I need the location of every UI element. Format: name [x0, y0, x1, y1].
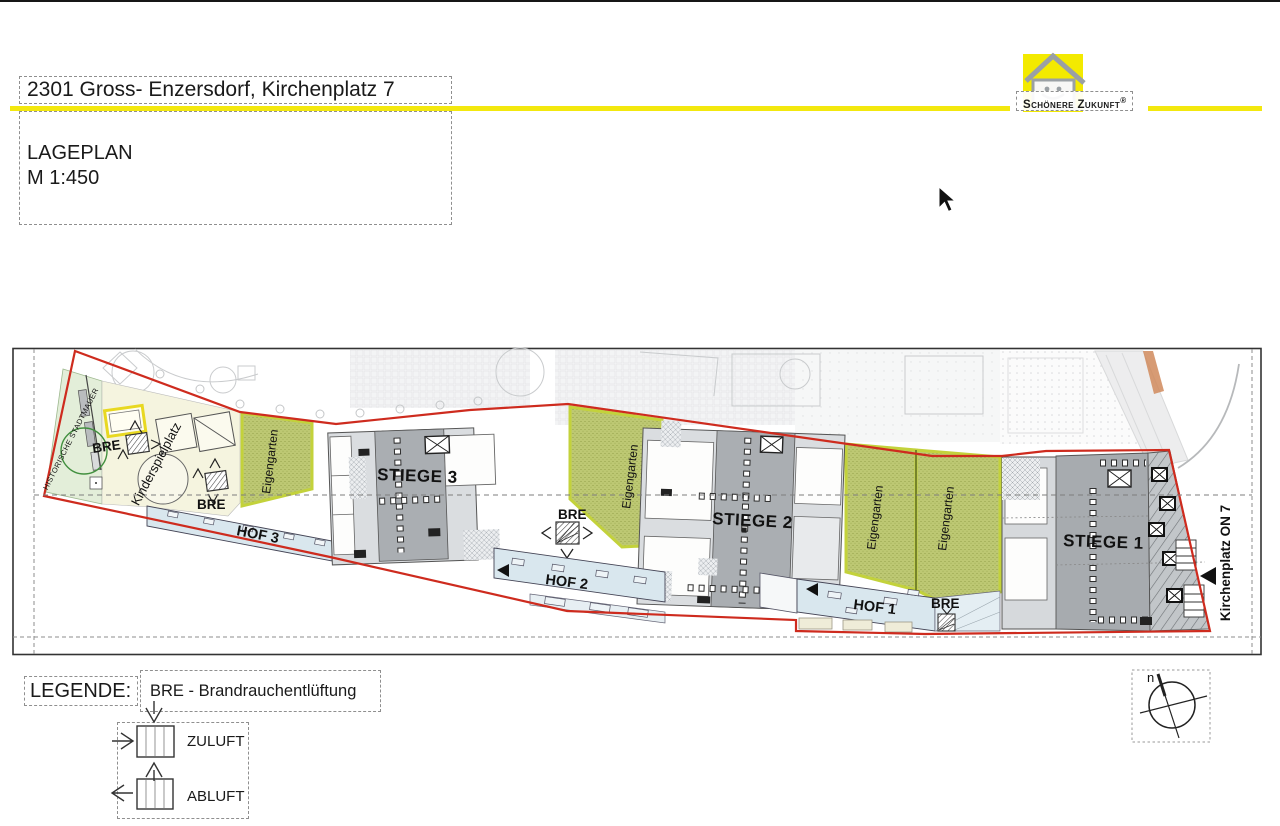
- stiege3-label: STIEGE 3: [377, 465, 458, 487]
- bre-vent-1: [126, 433, 149, 455]
- street-label: Kirchenplatz ON 7: [1218, 505, 1233, 621]
- stiege1-label: STIEGE 1: [1063, 531, 1144, 553]
- north-label: n: [1147, 670, 1154, 685]
- bre-label-4: BRE: [931, 596, 960, 611]
- zuluft-down-arrow-icon: [146, 701, 162, 722]
- zuluft-label: ZULUFT: [187, 733, 245, 750]
- north-compass: n: [1128, 664, 1216, 746]
- project-title: 2301 Gross- Enzersdorf, Kirchenplatz 7: [19, 76, 452, 104]
- page-top-edge: [0, 0, 1280, 2]
- logo-wordmark: Schönere Zukunft®: [1016, 91, 1133, 111]
- accent-underline-right: [1148, 106, 1262, 111]
- plan-sheet: 2301 Gross- Enzersdorf, Kirchenplatz 7 L…: [0, 0, 1280, 826]
- registered-mark: ®: [1120, 96, 1126, 105]
- logo-brand-text: Schönere Zukunft: [1023, 99, 1120, 111]
- building-stiege3: [328, 427, 501, 565]
- zuluft-in-arrow-icon: [112, 733, 133, 749]
- plan-scale: M 1:450: [27, 166, 451, 191]
- plan-type-label: LAGEPLAN: [27, 141, 451, 166]
- abluft-out-arrow-icon: [112, 785, 133, 801]
- abluft-label: ABLUFT: [187, 788, 245, 805]
- mouse-cursor-icon: [936, 186, 958, 214]
- bre-label-3: BRE: [558, 507, 587, 522]
- bre-label-2: BRE: [197, 497, 226, 512]
- abluft-up-arrow-icon: [146, 763, 162, 781]
- play-equipment-yellow: [105, 405, 146, 436]
- site-plan: STIEGE 3 STIEGE 2 STIEGE 1 HOF 3 HOF 2 H…: [12, 347, 1262, 658]
- plan-type-block: LAGEPLAN M 1:450: [19, 111, 452, 225]
- bre-vent-2: [205, 471, 228, 492]
